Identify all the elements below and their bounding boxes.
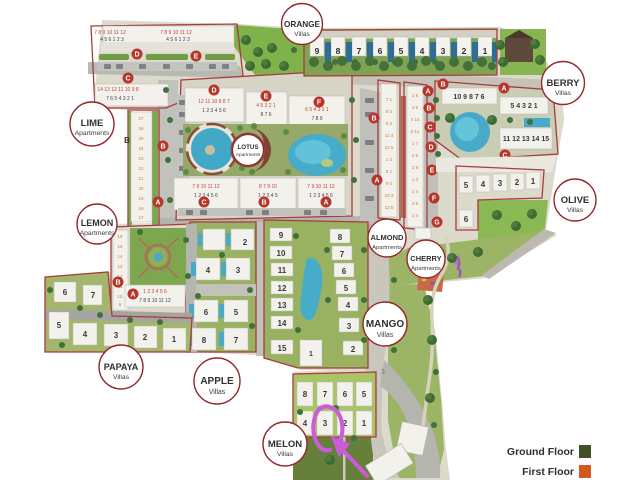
svg-text:13: 13 [278,301,287,310]
svg-text:16: 16 [117,234,123,239]
svg-text:D: D [428,145,433,152]
svg-text:2: 2 [515,178,520,187]
svg-text:Apartments: Apartments [80,230,115,237]
svg-text:OLIVE: OLIVE [561,195,590,206]
svg-text:1 7: 1 7 [412,141,419,146]
svg-text:10: 10 [117,294,123,299]
svg-text:21: 21 [138,176,144,181]
svg-text:5: 5 [362,390,367,399]
svg-text:C: C [201,200,206,207]
svg-text:ALMOND: ALMOND [371,233,404,242]
svg-text:8 7 9 10: 8 7 9 10 [259,184,277,190]
svg-text:4: 4 [420,46,425,56]
svg-text:4: 4 [83,330,88,339]
svg-text:1: 1 [309,351,313,358]
svg-text:10 9 8 7 6: 10 9 8 7 6 [453,94,484,101]
svg-text:1: 1 [531,177,536,186]
svg-text:A: A [425,89,430,96]
svg-text:3: 3 [381,369,385,376]
svg-text:C: C [125,76,130,83]
svg-text:2: 2 [243,238,248,247]
svg-text:D: D [211,88,216,95]
svg-text:1: 1 [172,335,177,344]
svg-text:1 2: 1 2 [386,157,393,162]
svg-text:Apartments: Apartments [236,152,261,158]
svg-text:5 4 3 2 1: 5 4 3 2 1 [510,103,537,110]
svg-text:Villas: Villas [555,90,572,97]
svg-text:8: 8 [336,46,341,56]
svg-text:3: 3 [323,419,328,428]
svg-text:6 5 4 3 2 1: 6 5 4 3 2 1 [305,107,329,113]
svg-text:8 2: 8 2 [386,109,393,114]
svg-text:7 8 9 10 11 12: 7 8 9 10 11 12 [139,298,171,304]
svg-text:4: 4 [206,266,211,275]
svg-text:4: 4 [346,301,351,310]
svg-text:MANGO: MANGO [366,319,405,330]
svg-text:4: 4 [481,180,486,189]
svg-text:Villas: Villas [377,332,394,339]
svg-text:B: B [160,144,165,151]
svg-text:A: A [501,86,506,93]
svg-text:First Floor: First Floor [522,466,574,478]
svg-text:10: 10 [277,249,286,258]
svg-text:14: 14 [278,319,287,328]
svg-text:7 9 10 11 12: 7 9 10 11 12 [307,184,335,190]
svg-text:8 1: 8 1 [386,169,393,174]
svg-text:5: 5 [399,46,404,56]
svg-text:E: E [430,168,435,175]
svg-text:8: 8 [338,233,343,242]
svg-text:3 5: 3 5 [412,201,419,206]
svg-text:9: 9 [279,231,284,240]
svg-text:1 2 3 4 5 6: 1 2 3 4 5 6 [202,108,226,114]
svg-text:12: 12 [278,284,287,293]
svg-text:7: 7 [323,390,328,399]
svg-text:4 5 6 1 2 3: 4 5 6 1 2 3 [100,37,124,43]
svg-text:2: 2 [462,46,467,56]
svg-text:14: 14 [117,254,123,259]
svg-text:2: 2 [351,345,356,354]
svg-text:3: 3 [498,179,503,188]
svg-text:18: 18 [138,206,144,211]
svg-text:5 11: 5 11 [411,129,420,134]
svg-text:9 3: 9 3 [386,121,393,126]
svg-text:7 9 10 11 12: 7 9 10 11 12 [192,184,220,190]
svg-text:8: 8 [202,336,207,345]
svg-text:Apartments: Apartments [372,245,402,251]
svg-text:10 3: 10 3 [385,193,394,198]
svg-text:6: 6 [63,288,68,297]
svg-text:E: E [264,94,269,101]
svg-text:B: B [440,82,445,89]
svg-text:F: F [317,100,322,107]
svg-text:6: 6 [342,267,347,276]
svg-text:4: 4 [303,419,308,428]
svg-text:5: 5 [344,284,349,293]
svg-text:LIME: LIME [81,118,104,129]
svg-text:Ground Floor: Ground Floor [507,446,574,458]
svg-text:12 11 10 9 8 7: 12 11 10 9 8 7 [198,99,230,105]
svg-text:15: 15 [278,344,287,353]
svg-text:2: 2 [143,333,148,342]
svg-text:8 7 6: 8 7 6 [260,112,271,118]
svg-text:9 2: 9 2 [386,181,393,186]
svg-text:15: 15 [117,244,123,249]
svg-text:13: 13 [117,264,123,269]
svg-text:7 8 9 10 11 12: 7 8 9 10 11 12 [94,30,126,36]
svg-text:2 8: 2 8 [412,153,419,158]
svg-text:APPLE: APPLE [200,376,234,387]
svg-text:4 10: 4 10 [411,117,420,122]
svg-text:ORANGE: ORANGE [284,20,320,29]
svg-text:A: A [374,178,379,185]
svg-text:7: 7 [234,336,239,345]
svg-text:4 5 3 2 1: 4 5 3 2 1 [256,103,276,109]
svg-text:5: 5 [57,321,62,330]
svg-text:B: B [115,280,120,287]
svg-text:7: 7 [340,250,345,259]
svg-text:Villas: Villas [277,451,294,458]
svg-text:Villas: Villas [567,207,584,214]
svg-text:6: 6 [204,308,209,317]
svg-text:23: 23 [138,156,144,161]
svg-text:9: 9 [315,46,320,56]
svg-text:F: F [432,196,437,203]
svg-text:3: 3 [236,266,241,275]
svg-text:11 4: 11 4 [385,133,394,138]
svg-text:CHERRY: CHERRY [410,254,441,263]
svg-text:Villas: Villas [113,374,130,381]
svg-text:MELON: MELON [268,439,302,450]
svg-text:11 12 13 14 15: 11 12 13 14 15 [503,136,549,143]
svg-text:3: 3 [347,322,352,331]
svg-text:LEMON: LEMON [81,218,114,228]
svg-text:7 8 9 10 11 12: 7 8 9 10 11 12 [160,30,192,36]
svg-text:3 9: 3 9 [412,165,419,170]
svg-text:24: 24 [138,146,144,151]
svg-text:6: 6 [343,390,348,399]
svg-text:7 8 9: 7 8 9 [311,116,322,122]
svg-text:A: A [323,200,328,207]
svg-text:BERRY: BERRY [547,78,581,89]
svg-text:B: B [124,136,130,145]
svg-text:1: 1 [483,46,488,56]
svg-text:12 5: 12 5 [385,145,394,150]
svg-text:22: 22 [138,166,144,171]
svg-text:19: 19 [138,196,144,201]
svg-text:B: B [426,106,431,113]
svg-text:6: 6 [378,46,383,56]
svg-text:3: 3 [114,331,119,340]
svg-text:2 8: 2 8 [412,93,419,98]
svg-text:7: 7 [357,46,362,56]
svg-text:2 4: 2 4 [412,213,419,218]
svg-text:20: 20 [138,186,144,191]
svg-text:5: 5 [234,308,239,317]
svg-text:7 1: 7 1 [386,97,393,102]
svg-text:7: 7 [91,291,96,300]
svg-text:Villas: Villas [209,389,226,396]
svg-text:2 4: 2 4 [412,189,419,194]
svg-text:B: B [261,200,266,207]
svg-text:17: 17 [138,215,144,220]
svg-text:5: 5 [464,181,469,190]
svg-text:26: 26 [138,126,144,131]
svg-text:6: 6 [464,215,469,224]
svg-text:27: 27 [138,116,144,121]
svg-text:E: E [194,54,199,61]
svg-text:B: B [371,116,376,123]
svg-text:8: 8 [303,390,308,399]
svg-text:G: G [434,220,440,227]
svg-text:1 2 3 4 5 6: 1 2 3 4 5 6 [143,289,167,295]
svg-text:PAPAYA: PAPAYA [104,362,139,372]
svg-text:3: 3 [441,46,446,56]
svg-text:1: 1 [362,419,367,428]
svg-text:LOTUS: LOTUS [238,144,259,151]
svg-text:D: D [134,52,139,59]
svg-text:25: 25 [138,136,144,141]
svg-text:A: A [155,200,160,207]
svg-text:Apartments: Apartments [411,266,441,272]
svg-text:3 9: 3 9 [412,105,419,110]
svg-text:Apartments: Apartments [75,130,110,137]
svg-text:12 5: 12 5 [385,205,394,210]
svg-text:4 5 6 1 2 3: 4 5 6 1 2 3 [166,37,190,43]
svg-text:Villas: Villas [294,31,310,38]
svg-text:A: A [130,292,135,299]
svg-text:11: 11 [278,266,287,275]
svg-text:C: C [427,125,432,132]
svg-text:1 3: 1 3 [412,177,419,182]
svg-text:7 6 5 4 3 2 1: 7 6 5 4 3 2 1 [106,96,134,102]
svg-text:14 13 12 11 10 9 8: 14 13 12 11 10 9 8 [97,87,139,93]
